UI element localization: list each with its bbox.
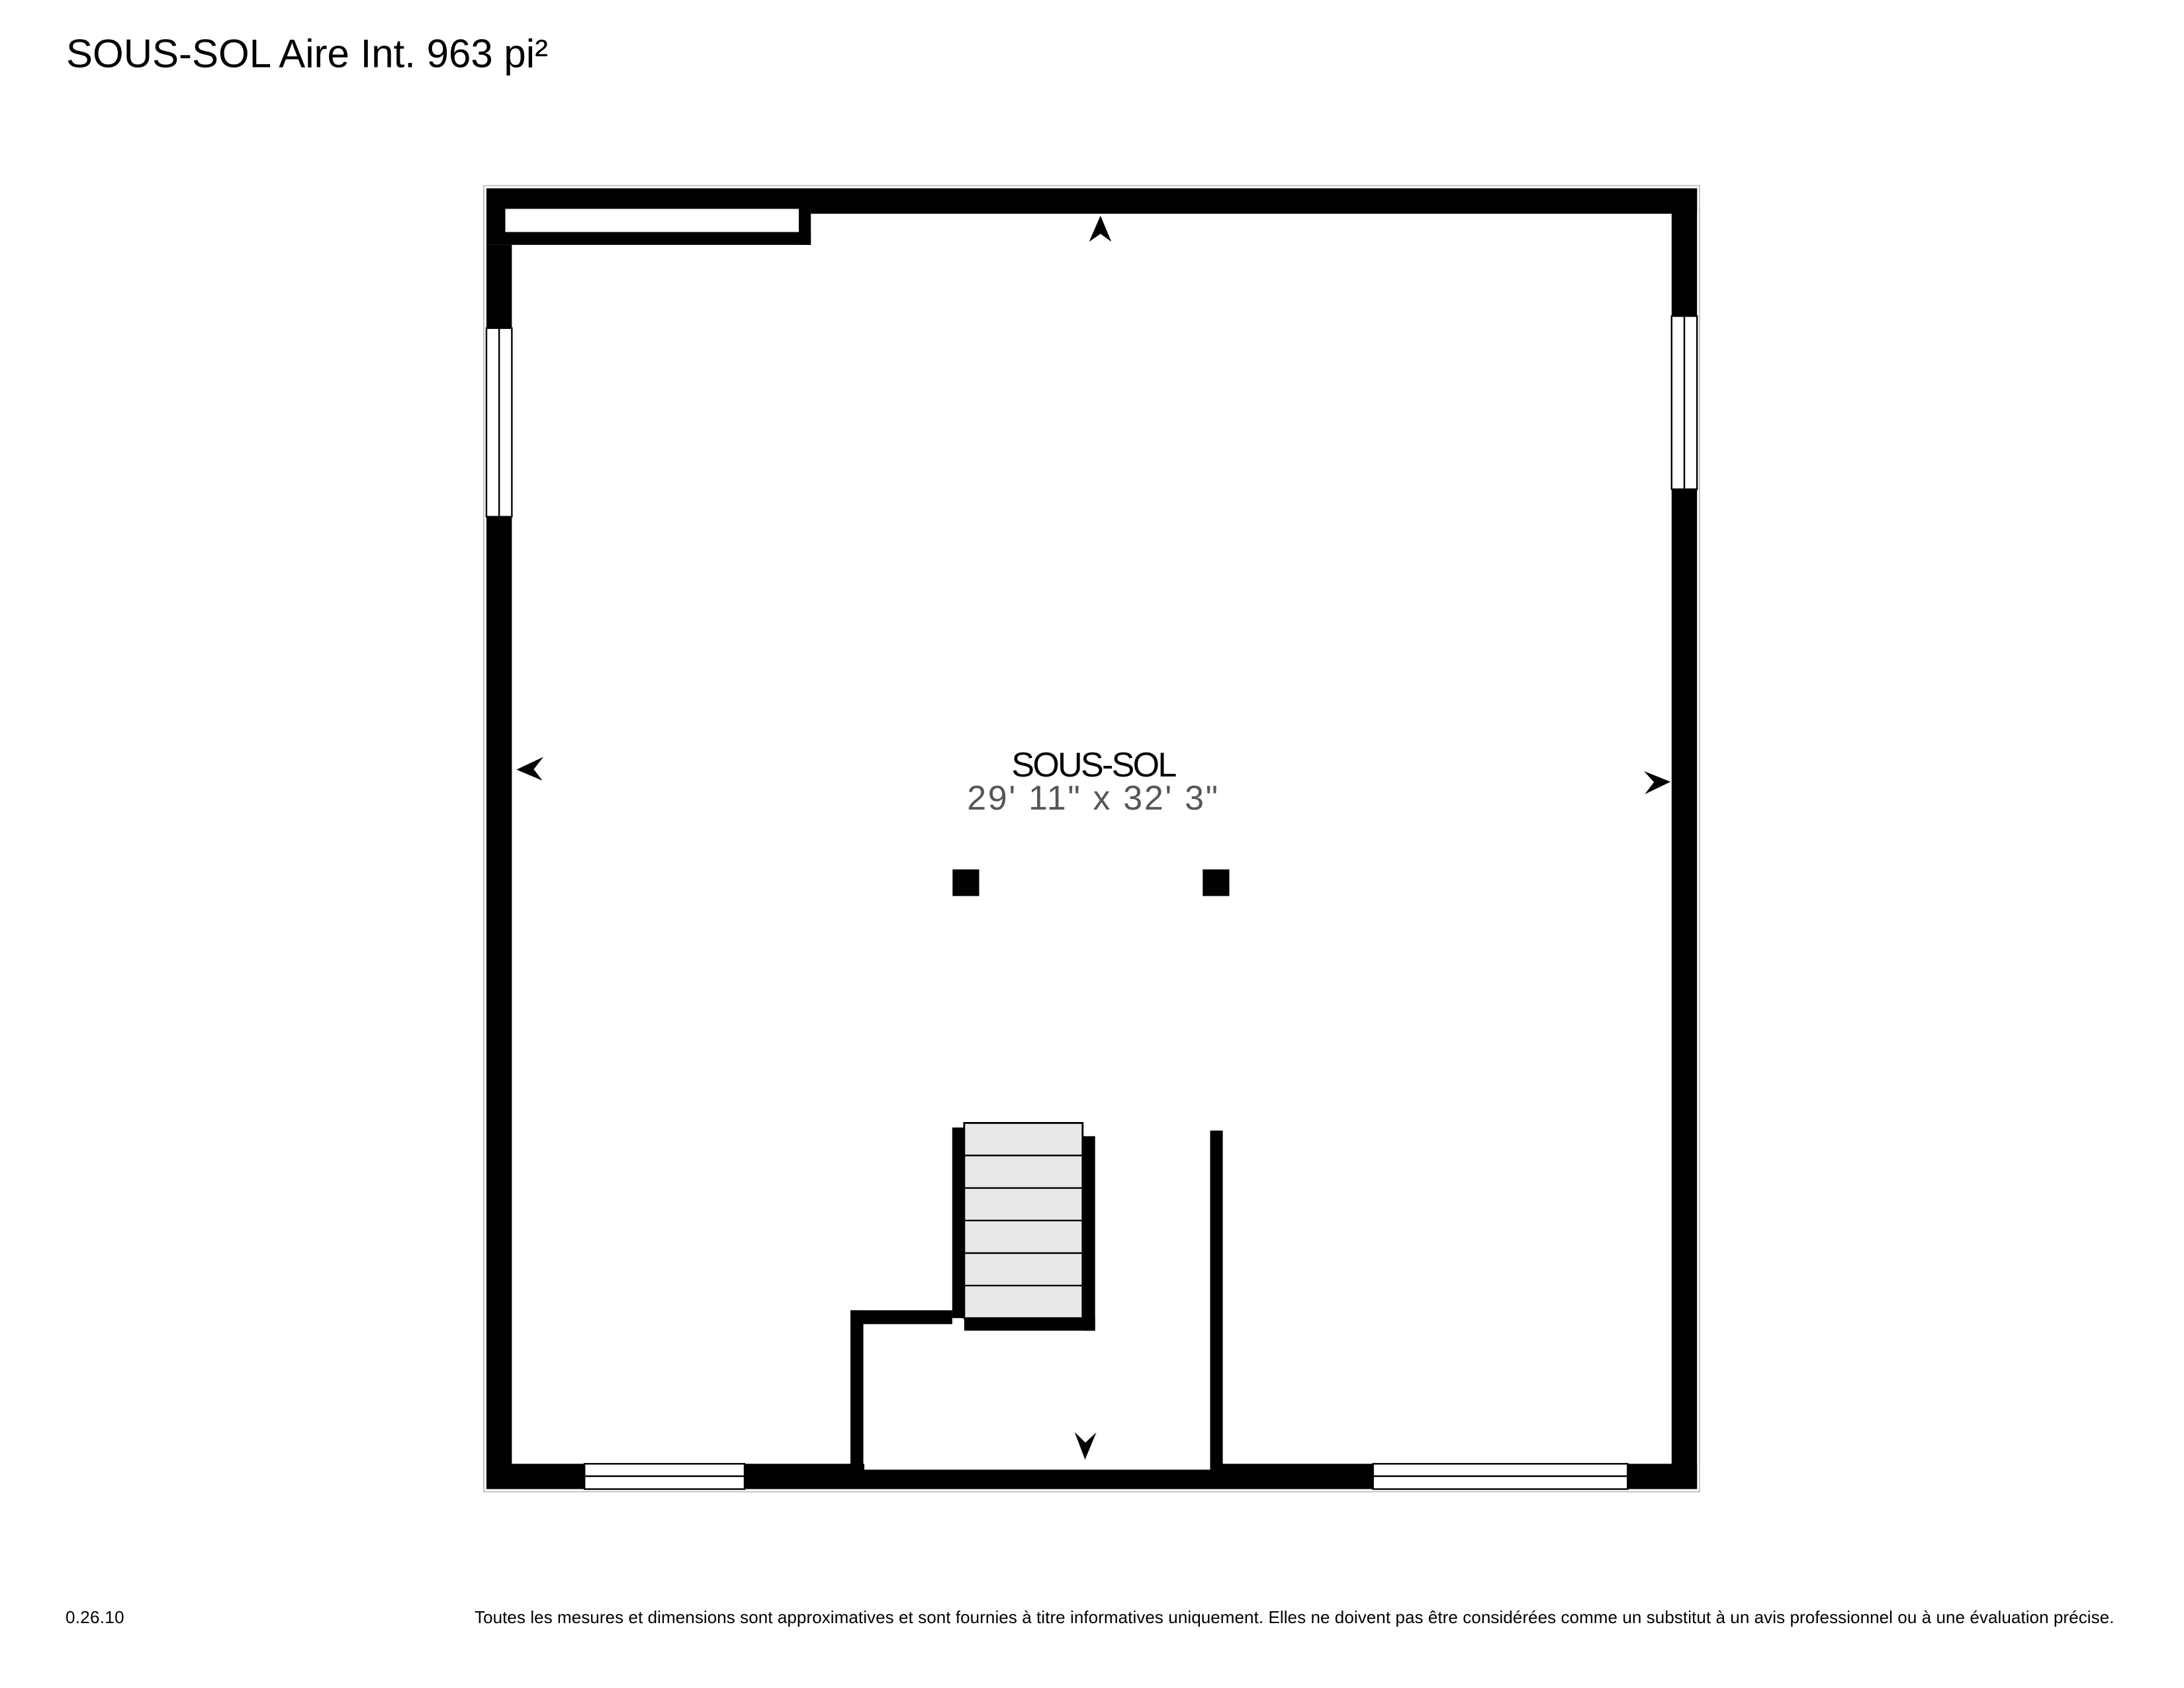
svg-text:SOUS-SOL Aire Int. 963 pi²: SOUS-SOL Aire Int. 963 pi² [66, 32, 548, 76]
svg-text:29' 11" x 32' 3": 29' 11" x 32' 3" [967, 779, 1220, 818]
svg-text:0.26.10: 0.26.10 [66, 1607, 124, 1627]
svg-text:Toutes les mesures et dimensio: Toutes les mesures et dimensions sont ap… [475, 1607, 2115, 1627]
